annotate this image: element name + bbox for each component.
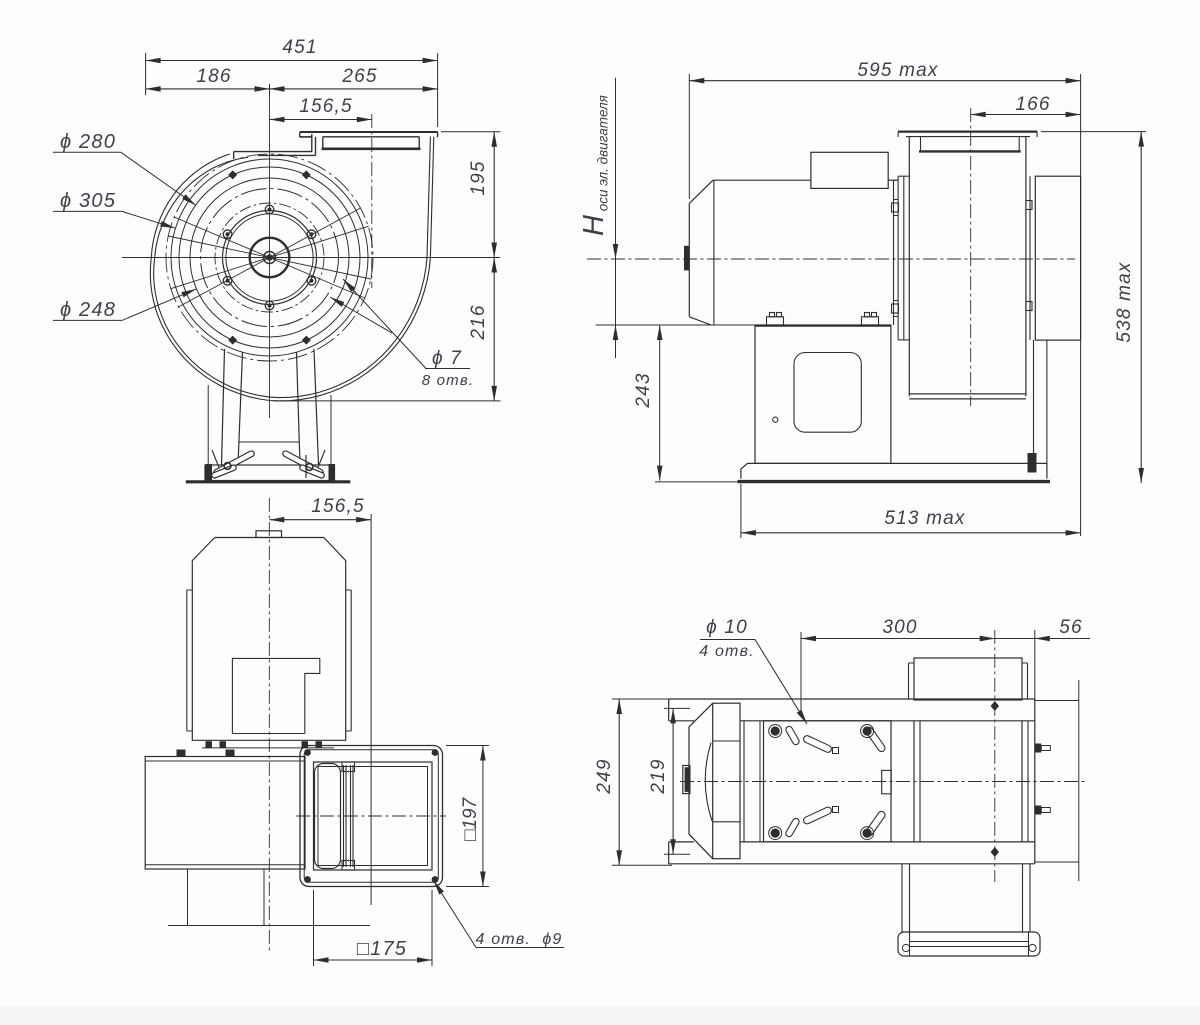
- svg-text:166: 166: [1015, 94, 1050, 115]
- svg-text:243: 243: [633, 372, 654, 408]
- svg-text:300: 300: [882, 617, 917, 638]
- svg-text:□197: □197: [460, 796, 481, 841]
- svg-text:156,5: 156,5: [311, 496, 365, 517]
- svg-text:4 отв.: 4 отв.: [699, 643, 755, 660]
- svg-text:513 max: 513 max: [884, 508, 966, 529]
- svg-text:ϕ 280: ϕ 280: [60, 131, 116, 153]
- svg-text:□175: □175: [357, 938, 407, 960]
- svg-text:8 отв.: 8 отв.: [422, 372, 475, 389]
- svg-text:538 max: 538 max: [1114, 261, 1135, 343]
- svg-text:ϕ 248: ϕ 248: [60, 299, 116, 321]
- svg-text:ϕ 7: ϕ 7: [432, 348, 462, 369]
- svg-text:ϕ 10: ϕ 10: [706, 617, 748, 638]
- svg-text:216: 216: [468, 304, 489, 340]
- svg-text:219: 219: [648, 758, 669, 794]
- svg-text:195: 195: [468, 160, 489, 195]
- svg-text:ϕ 305: ϕ 305: [60, 190, 116, 212]
- svg-text:451: 451: [282, 37, 317, 58]
- svg-text:249: 249: [594, 758, 615, 794]
- svg-text:186: 186: [196, 66, 231, 87]
- svg-text:4 отв. ϕ9: 4 отв. ϕ9: [475, 931, 562, 948]
- svg-text:56: 56: [1059, 617, 1083, 638]
- svg-text:595 max: 595 max: [857, 60, 939, 81]
- svg-text:265: 265: [341, 66, 377, 87]
- svg-text:156,5: 156,5: [299, 96, 353, 117]
